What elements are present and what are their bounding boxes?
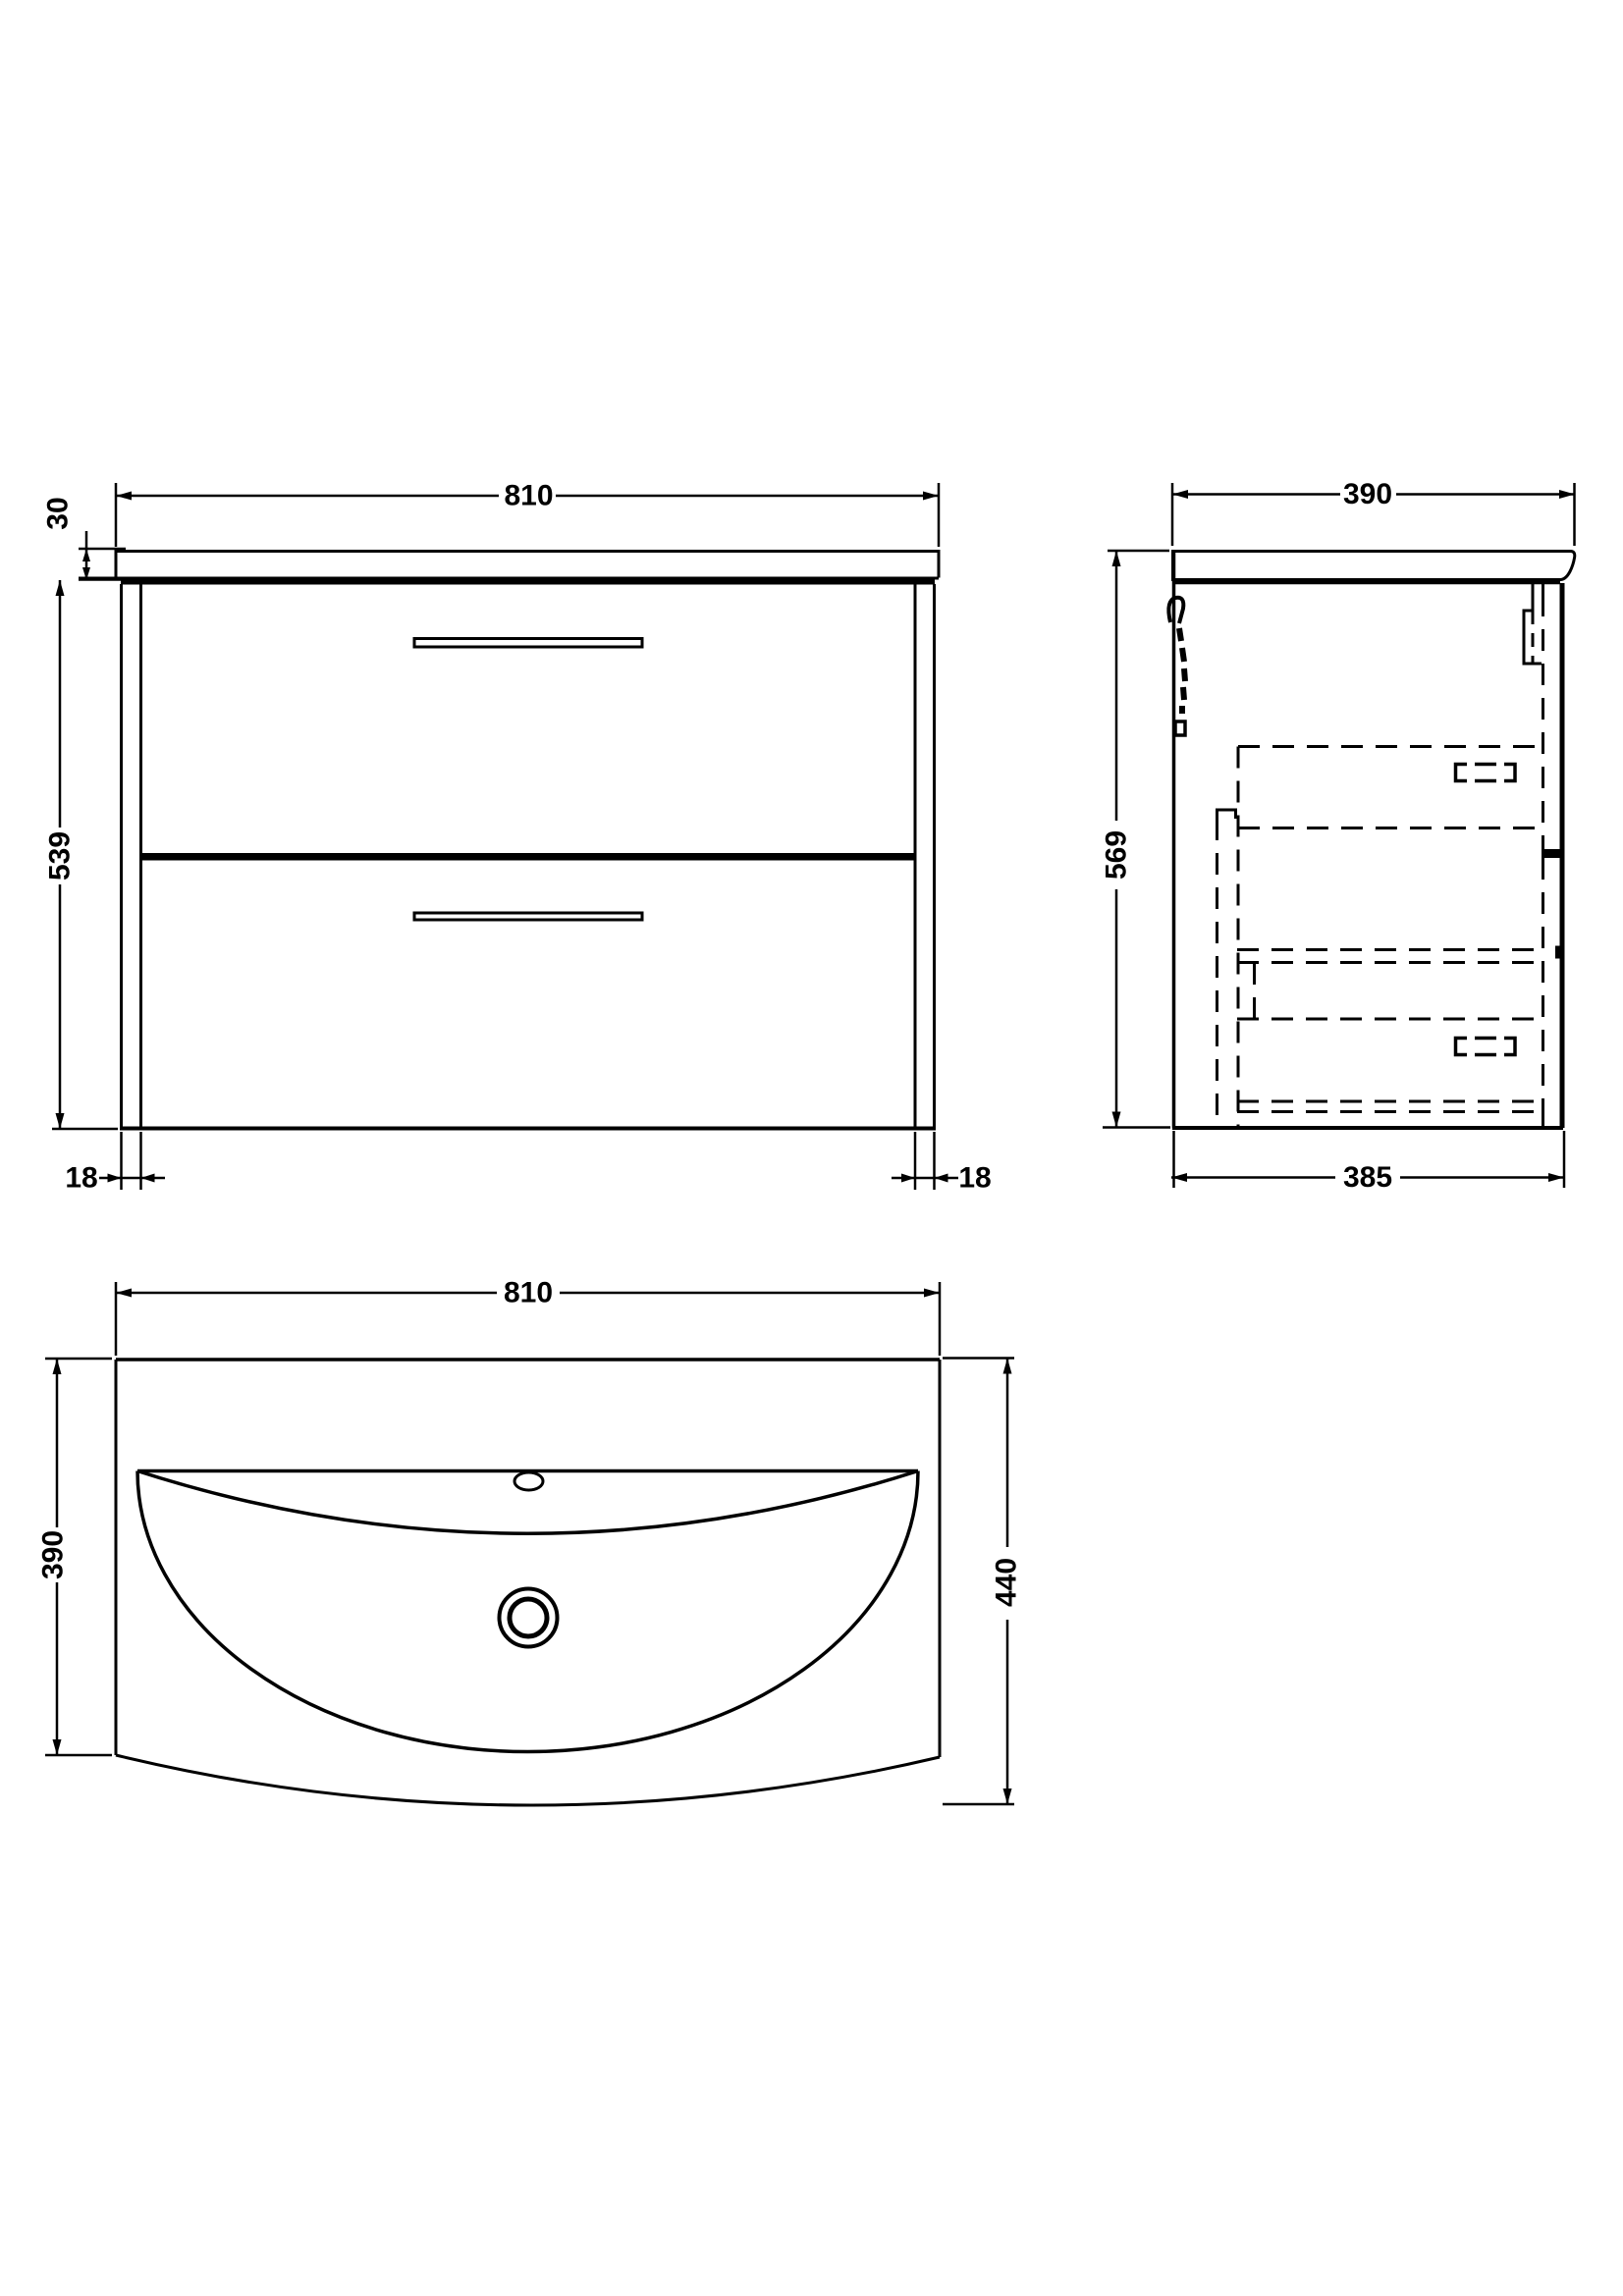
svg-text:810: 810	[504, 1277, 553, 1309]
svg-text:18: 18	[65, 1162, 97, 1195]
svg-text:390: 390	[37, 1530, 70, 1579]
svg-text:569: 569	[1101, 830, 1133, 880]
svg-text:440: 440	[991, 1558, 1023, 1607]
svg-text:390: 390	[1343, 478, 1392, 510]
svg-text:385: 385	[1343, 1161, 1392, 1194]
svg-text:539: 539	[44, 831, 77, 881]
svg-text:810: 810	[504, 480, 553, 512]
svg-text:18: 18	[958, 1162, 991, 1195]
svg-text:30: 30	[42, 497, 75, 529]
